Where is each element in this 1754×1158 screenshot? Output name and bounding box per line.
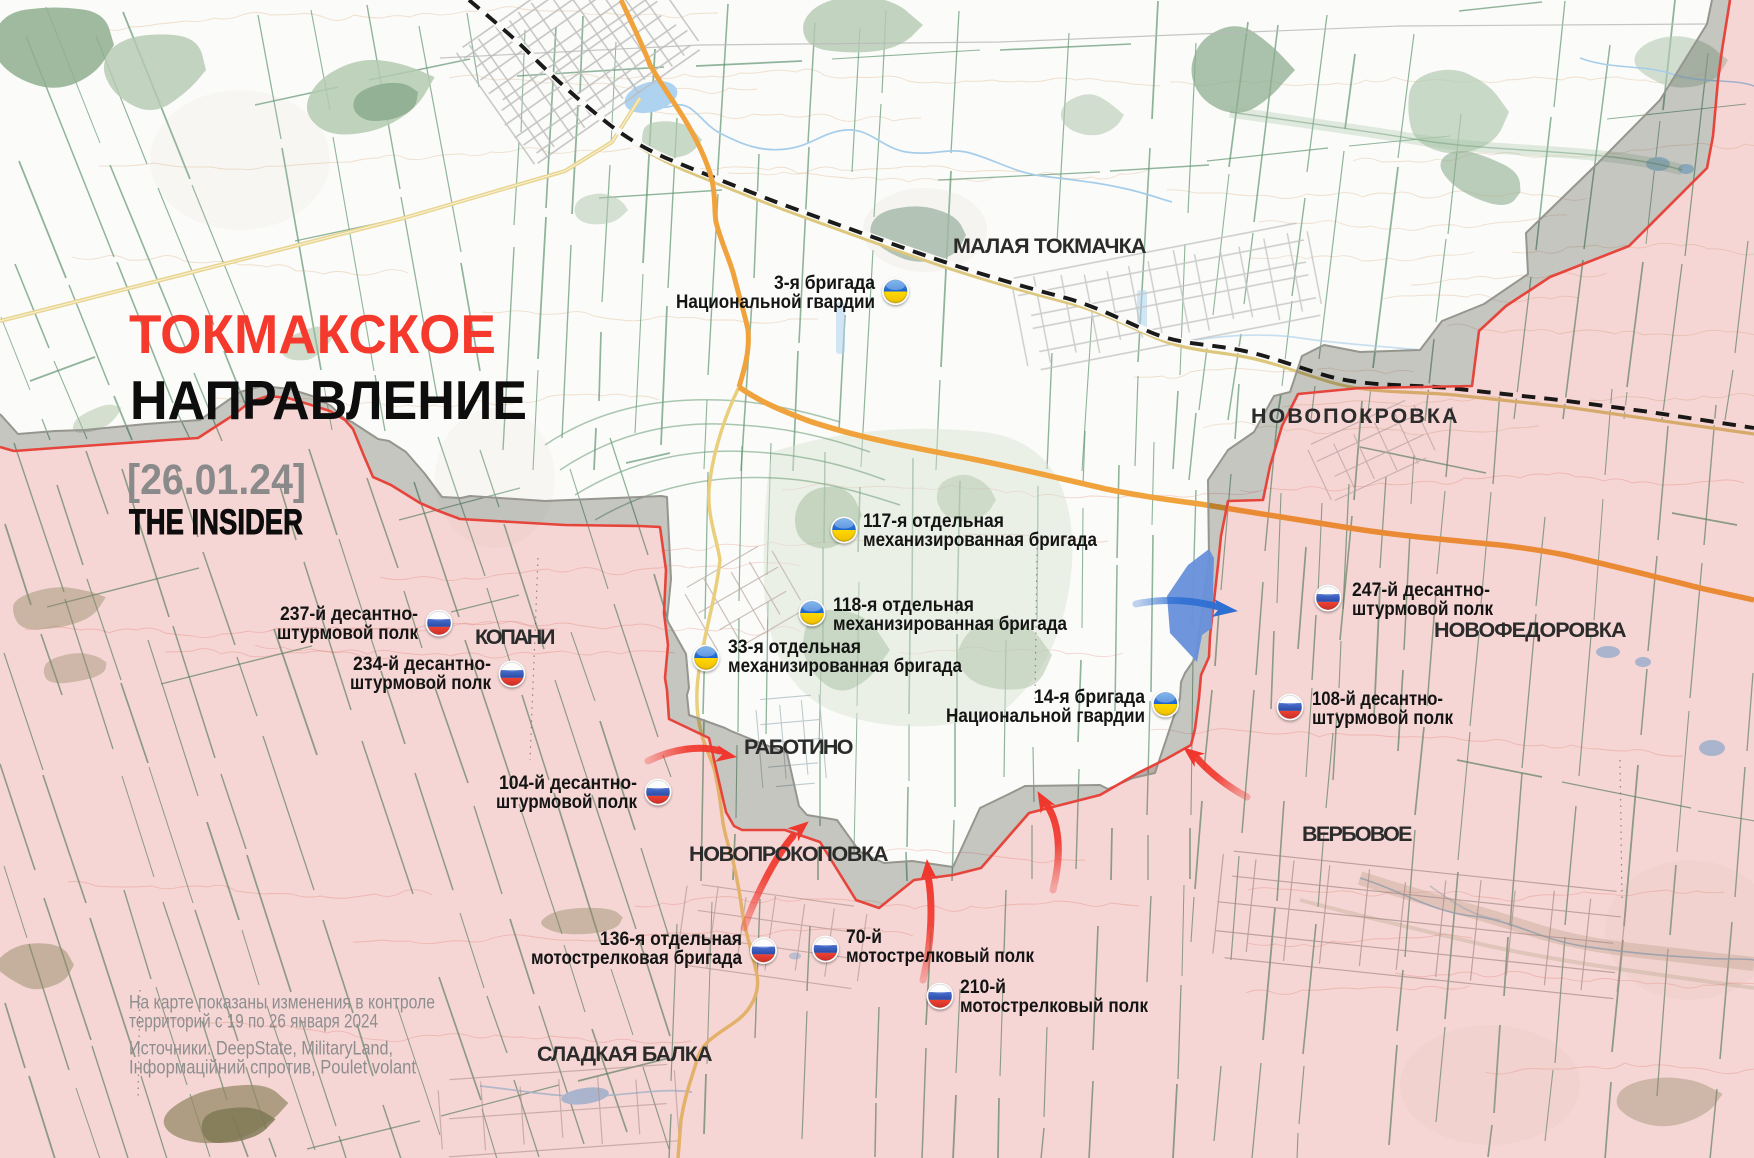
svg-text:мотострелковый полк: мотострелковый полк	[960, 995, 1148, 1017]
svg-text:[26.01.24]: [26.01.24]	[127, 456, 306, 504]
svg-text:штурмовой полк: штурмовой полк	[350, 672, 491, 694]
svg-text:штурмовой полк: штурмовой полк	[1312, 707, 1453, 729]
svg-text:штурмовой полк: штурмовой полк	[1352, 598, 1493, 620]
svg-text:ТОКМАКСКОЕ: ТОКМАКСКОЕ	[129, 303, 496, 365]
svg-text:НОВОПОКРОВКА: НОВОПОКРОВКА	[1251, 404, 1458, 428]
svg-text:мотострелковый полк: мотострелковый полк	[846, 945, 1034, 967]
svg-text:РАБОТИНО: РАБОТИНО	[744, 735, 854, 759]
svg-text:Национальной гвардии: Национальной гвардии	[676, 291, 875, 313]
svg-text:НОВОФЕДОРОВКА: НОВОФЕДОРОВКА	[1434, 618, 1627, 642]
svg-text:НАПРАВЛЕНИЕ: НАПРАВЛЕНИЕ	[130, 369, 527, 431]
svg-text:штурмовой полк: штурмовой полк	[277, 622, 418, 644]
svg-text:механизированная бригада: механизированная бригада	[728, 655, 962, 677]
svg-text:Национальной гвардии: Национальной гвардии	[946, 705, 1145, 727]
svg-text:территорий с 19 по 26 января 2: территорий с 19 по 26 января 2024	[129, 1011, 378, 1033]
svg-text:ВЕРБОВОЕ: ВЕРБОВОЕ	[1302, 822, 1413, 846]
svg-text:механизированная бригада: механизированная бригада	[833, 613, 1067, 635]
svg-text:КОПАНИ: КОПАНИ	[475, 625, 556, 649]
svg-text:штурмовой полк: штурмовой полк	[496, 791, 637, 813]
svg-text:THE INSIDER: THE INSIDER	[129, 503, 303, 542]
svg-text:механизированная бригада: механизированная бригада	[863, 529, 1097, 551]
svg-text:НОВОПРОКОПОВКА: НОВОПРОКОПОВКА	[689, 842, 889, 866]
svg-text:Інформаційний спротив, Poulet: Інформаційний спротив, Poulet volant	[129, 1057, 416, 1079]
svg-text:СЛАДКАЯ БАЛКА: СЛАДКАЯ БАЛКА	[537, 1042, 713, 1066]
svg-text:МАЛАЯ ТОКМАЧКА: МАЛАЯ ТОКМАЧКА	[953, 234, 1147, 258]
svg-text:мотострелковая бригада: мотострелковая бригада	[531, 947, 742, 969]
